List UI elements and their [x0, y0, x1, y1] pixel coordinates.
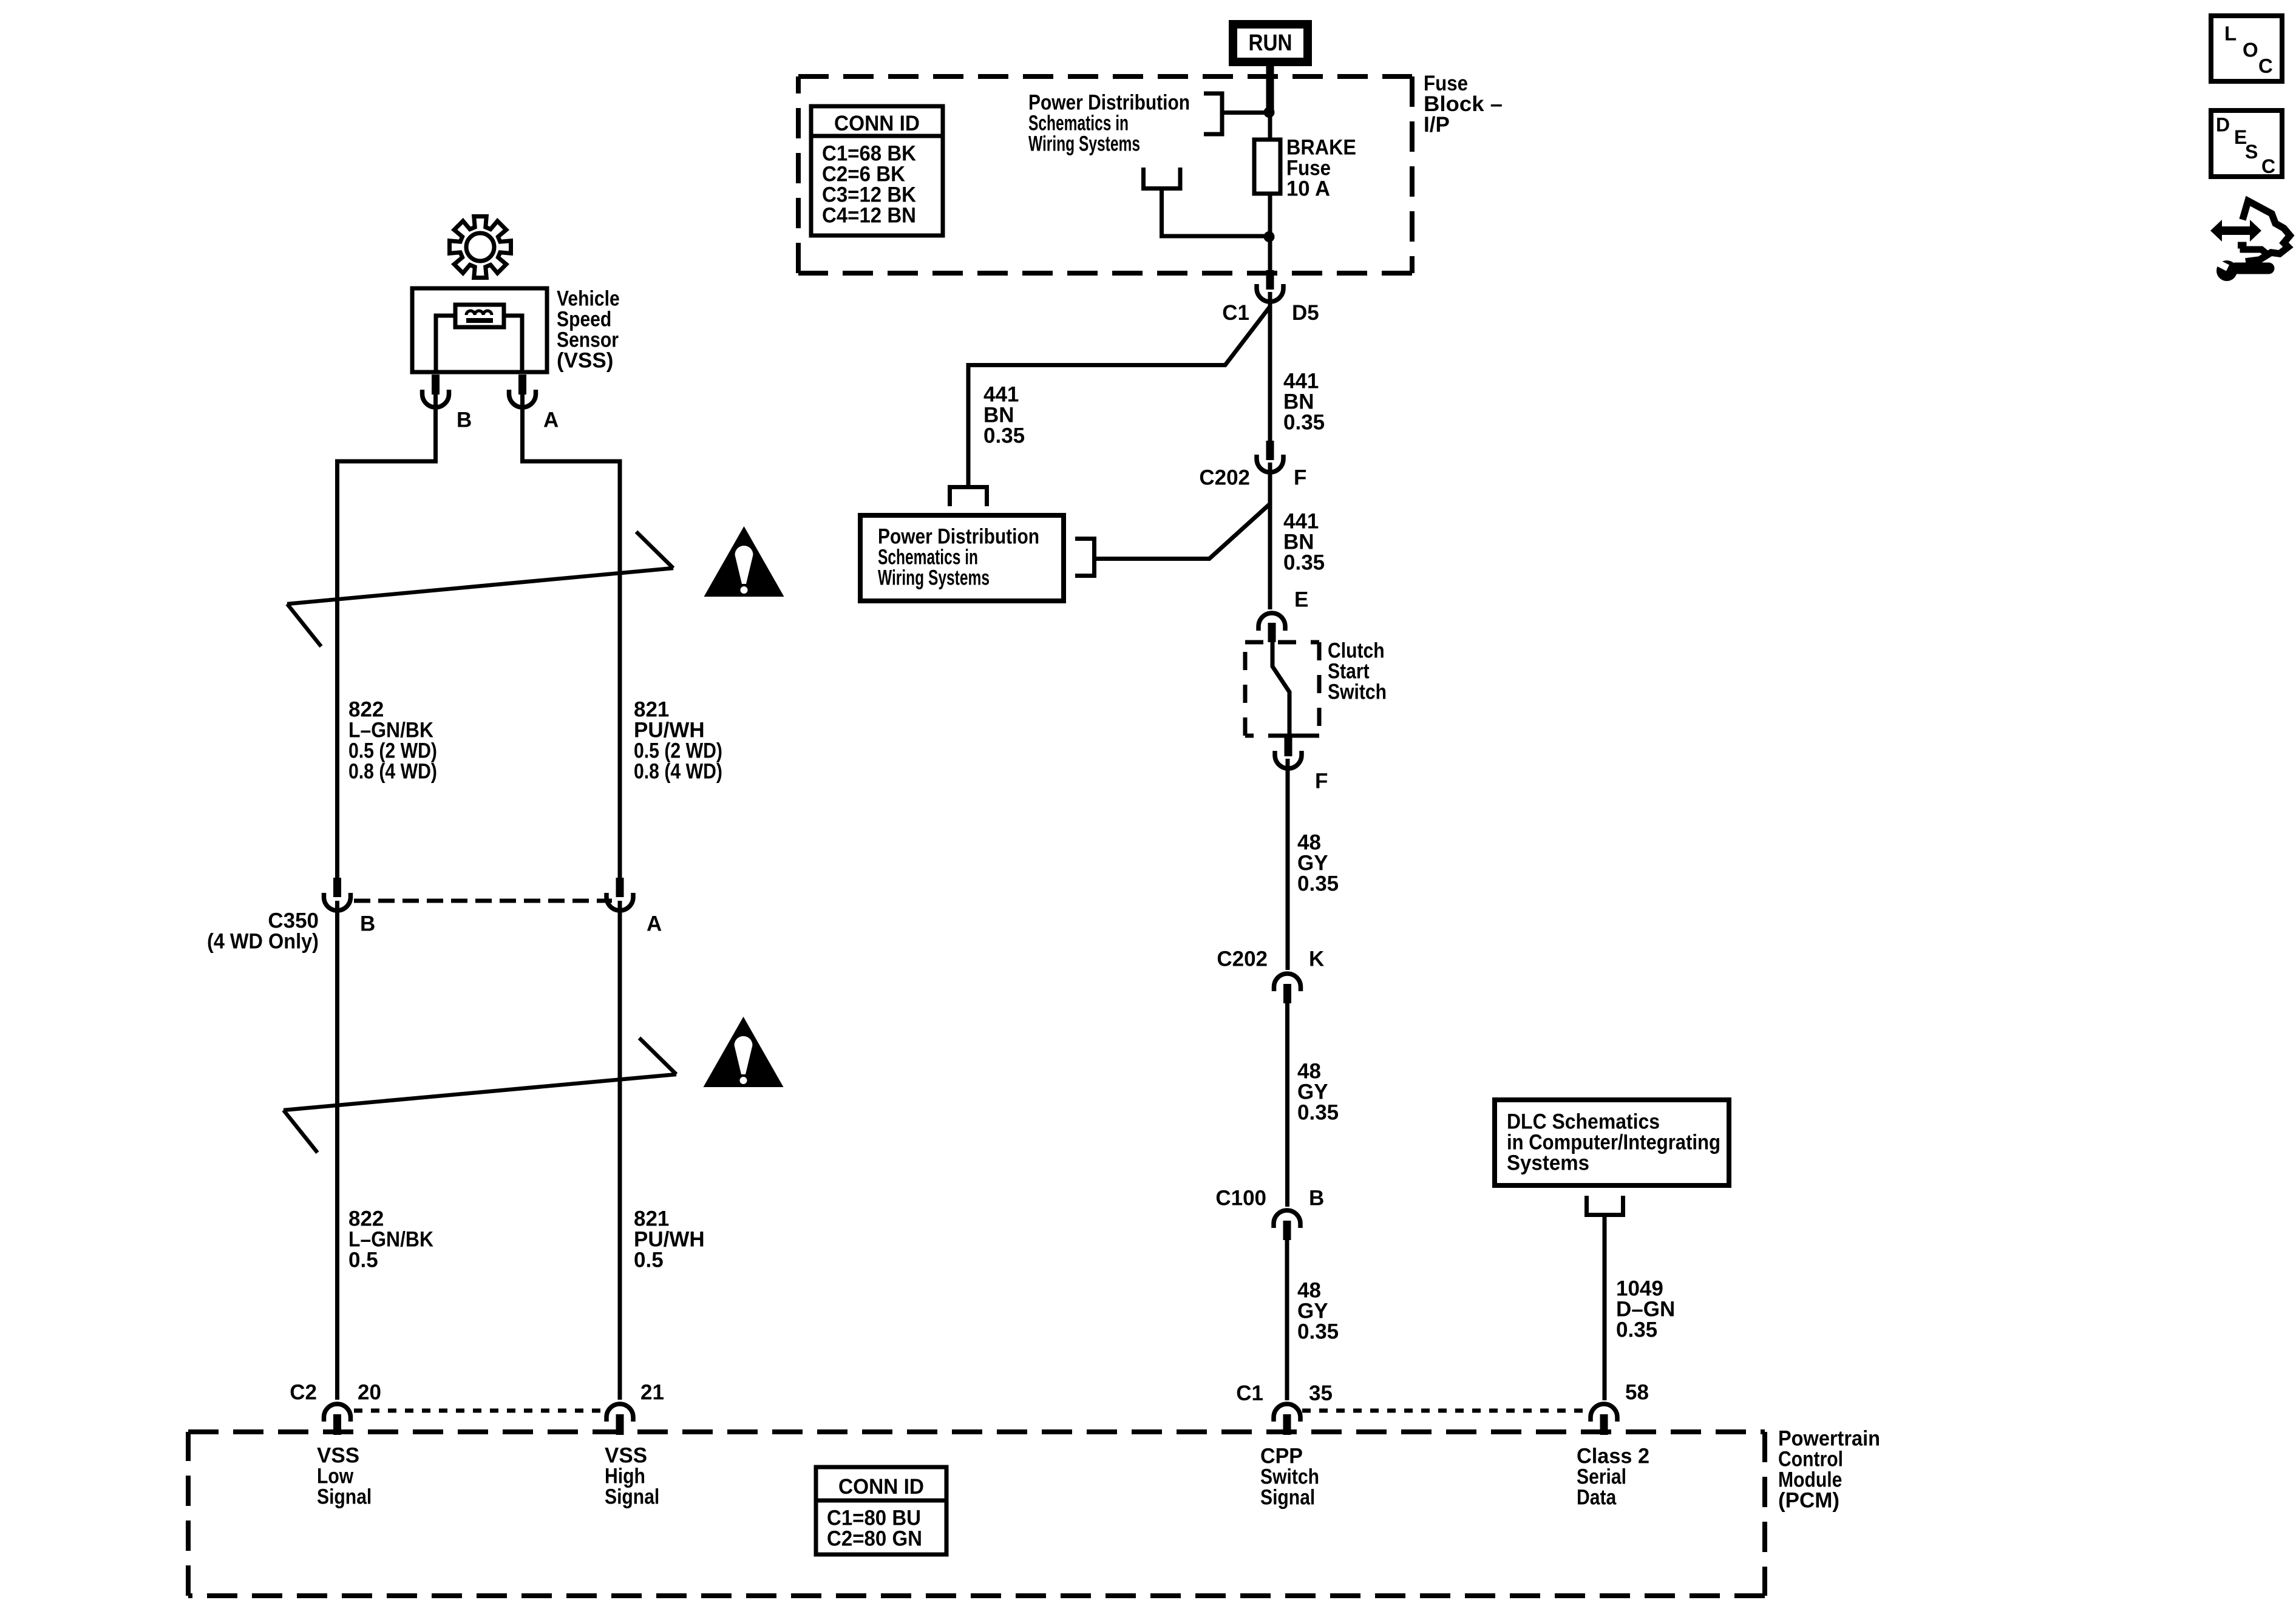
svg-text:0.35: 0.35: [1297, 872, 1339, 896]
svg-text:0.35: 0.35: [1616, 1318, 1657, 1342]
svg-text:D5: D5: [1292, 301, 1319, 325]
svg-text:(VSS): (VSS): [557, 349, 613, 373]
svg-text:0.35: 0.35: [1283, 551, 1325, 575]
svg-text:C202: C202: [1217, 947, 1268, 971]
svg-text:L: L: [2224, 22, 2237, 45]
svg-text:S: S: [2245, 141, 2258, 163]
svg-text:Data: Data: [1577, 1486, 1617, 1510]
svg-text:CONN ID: CONN ID: [834, 112, 920, 135]
svg-text:(PCM): (PCM): [1778, 1489, 1839, 1513]
svg-text:20: 20: [358, 1381, 381, 1405]
svg-text:B: B: [360, 912, 375, 936]
svg-text:58: 58: [1625, 1381, 1649, 1405]
svg-text:0.5: 0.5: [348, 1249, 378, 1272]
svg-text:E: E: [1294, 588, 1308, 612]
svg-text:C4=12 BN: C4=12 BN: [822, 204, 916, 228]
svg-text:21: 21: [640, 1381, 664, 1405]
svg-text:Wiring Systems: Wiring Systems: [1028, 132, 1140, 156]
svg-text:CONN ID: CONN ID: [838, 1475, 924, 1499]
svg-text:0.5: 0.5: [634, 1249, 664, 1272]
svg-text:C2: C2: [290, 1381, 317, 1405]
svg-text:0.35: 0.35: [1297, 1101, 1339, 1125]
svg-text:F: F: [1294, 466, 1306, 490]
svg-text:C1: C1: [1236, 1381, 1263, 1405]
svg-text:F: F: [1315, 770, 1328, 793]
svg-text:Signal: Signal: [605, 1485, 659, 1509]
svg-text:10 A: 10 A: [1286, 177, 1330, 201]
svg-text:Signal: Signal: [317, 1485, 372, 1509]
svg-text:C: C: [2261, 155, 2275, 177]
svg-text:D: D: [2216, 114, 2230, 136]
svg-text:C1: C1: [1222, 301, 1249, 325]
svg-text:K: K: [1309, 947, 1324, 971]
svg-text:Signal: Signal: [1260, 1486, 1315, 1510]
svg-text:A: A: [543, 408, 559, 432]
svg-text:C2=80 GN: C2=80 GN: [827, 1527, 922, 1551]
svg-text:RUN: RUN: [1249, 30, 1292, 56]
svg-text:O: O: [2243, 39, 2258, 61]
svg-text:Wiring Systems: Wiring Systems: [878, 566, 990, 590]
svg-text:0.35: 0.35: [1283, 411, 1325, 435]
svg-text:C100: C100: [1215, 1187, 1266, 1210]
svg-text:(4 WD Only): (4 WD Only): [207, 930, 319, 954]
svg-text:0.8 (4 WD): 0.8 (4 WD): [634, 760, 722, 784]
svg-text:35: 35: [1309, 1381, 1333, 1405]
svg-text:B: B: [457, 408, 472, 432]
svg-text:Switch: Switch: [1328, 680, 1387, 704]
svg-text:B: B: [1309, 1187, 1324, 1210]
svg-text:I/P: I/P: [1424, 113, 1450, 137]
svg-text:0.35: 0.35: [1297, 1320, 1339, 1344]
svg-text:Systems: Systems: [1507, 1151, 1589, 1175]
svg-text:0.8 (4 WD): 0.8 (4 WD): [348, 760, 437, 784]
svg-text:C: C: [2258, 55, 2273, 77]
svg-text:A: A: [647, 912, 662, 936]
svg-text:0.35: 0.35: [983, 424, 1025, 448]
svg-text:C202: C202: [1199, 466, 1250, 490]
